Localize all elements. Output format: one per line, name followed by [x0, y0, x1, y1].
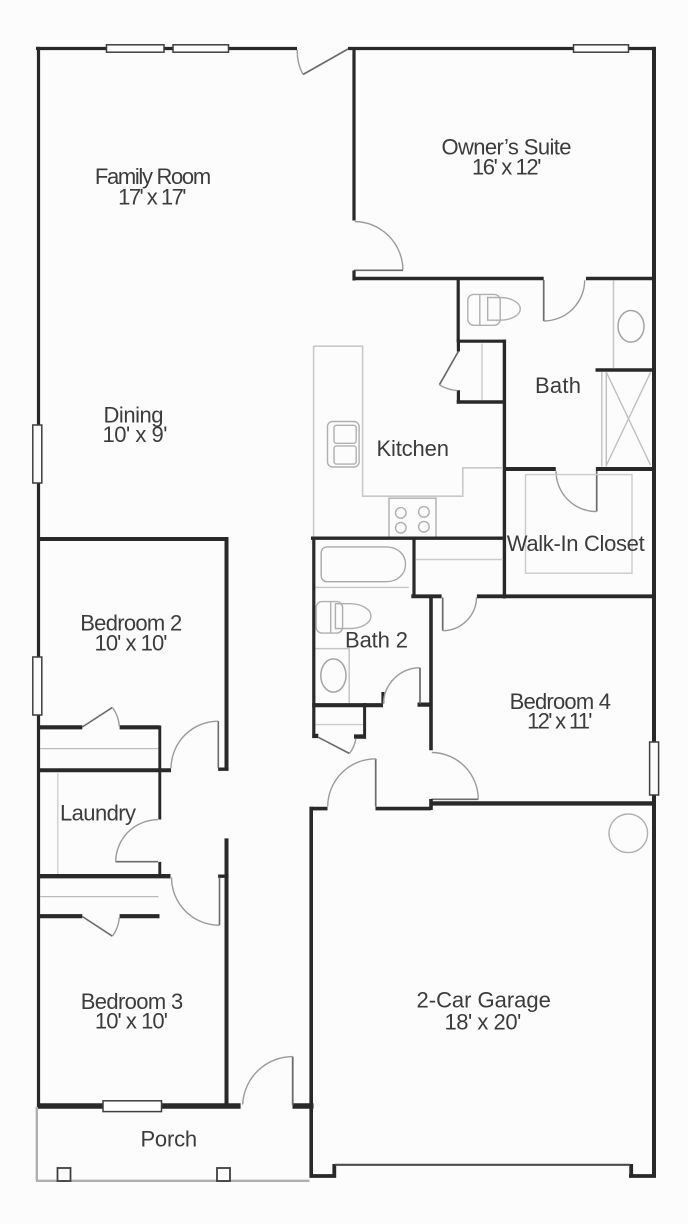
- svg-text:Kitchen: Kitchen: [376, 436, 449, 461]
- svg-text:12' x 11': 12' x 11': [527, 708, 592, 733]
- svg-text:10' x 9': 10' x 9': [103, 422, 168, 447]
- svg-text:Bath: Bath: [535, 373, 581, 398]
- svg-text:Bath 2: Bath 2: [345, 628, 408, 653]
- svg-text:18' x 20': 18' x 20': [445, 1009, 522, 1034]
- svg-text:17' x 17': 17' x 17': [118, 185, 186, 210]
- svg-text:10' x 10': 10' x 10': [95, 1009, 168, 1034]
- svg-text:Porch: Porch: [140, 1127, 197, 1152]
- svg-text:Walk-In Closet: Walk-In Closet: [507, 531, 645, 556]
- svg-text:10' x 10': 10' x 10': [95, 630, 168, 655]
- svg-text:16' x 12': 16' x 12': [472, 155, 542, 180]
- svg-text:Laundry: Laundry: [60, 801, 136, 826]
